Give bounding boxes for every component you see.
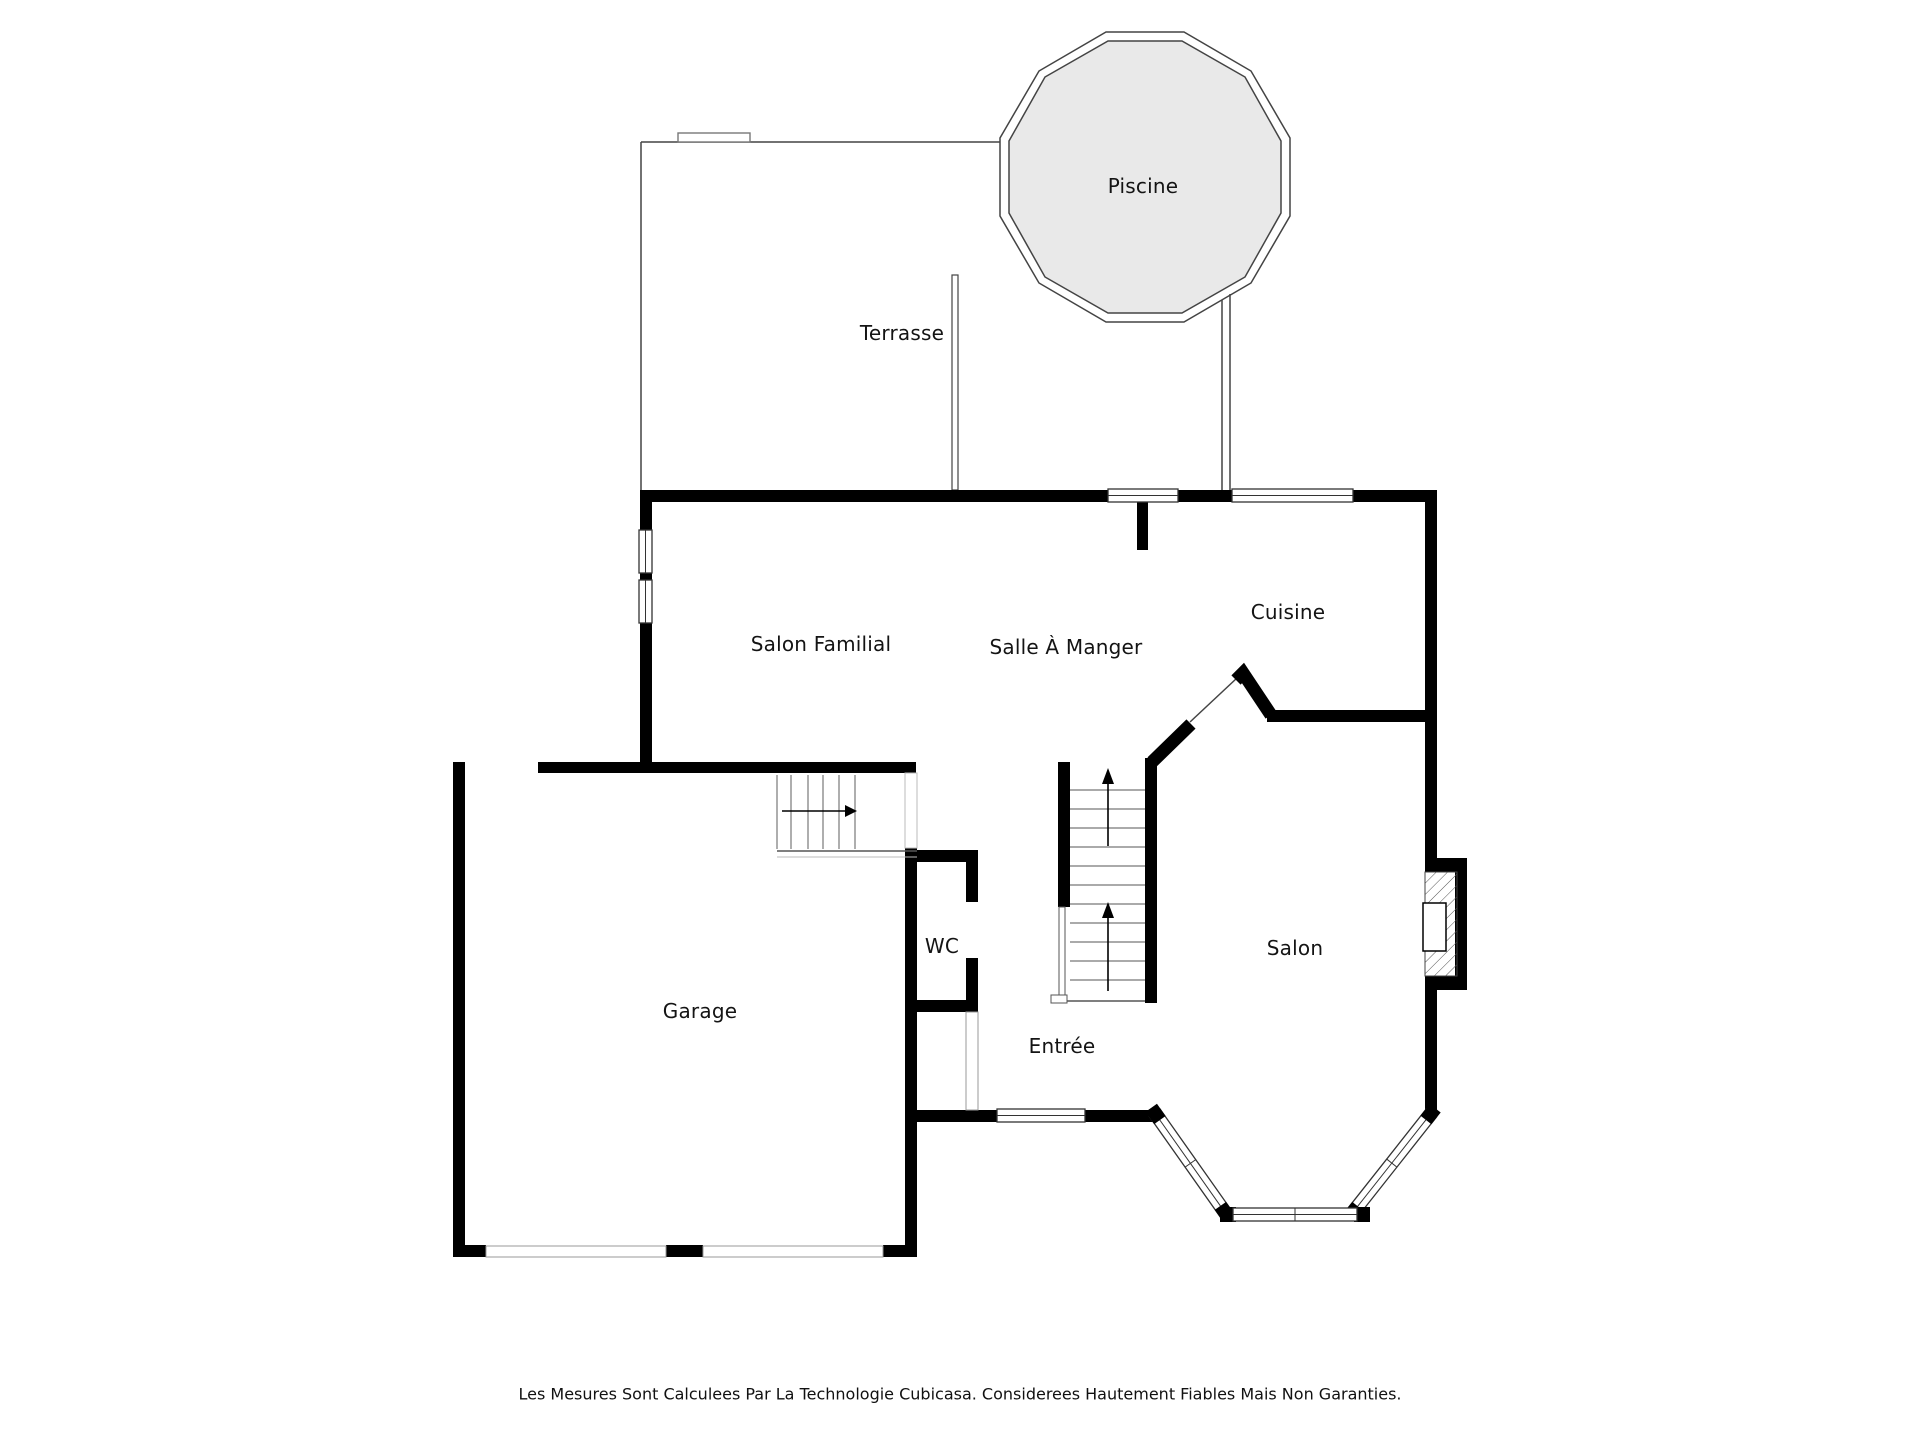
firebox: [1423, 903, 1446, 951]
window-left-2: [639, 580, 652, 623]
door-opening: [1190, 678, 1237, 722]
closet-door: [966, 1012, 978, 1110]
room-label-wc: WC: [925, 934, 959, 958]
stairs-garage: [777, 775, 917, 857]
fireplace: [1423, 858, 1467, 990]
garage-door-2: [703, 1246, 883, 1257]
up-arrow-icon: [1102, 902, 1114, 991]
terrasse-outline: [641, 133, 1000, 490]
window-top-1: [1108, 489, 1178, 502]
opening-edge: [905, 773, 917, 848]
floor-plan: Piscine Terrasse Salon Familial Salle À …: [0, 0, 1920, 1440]
room-label-salon-familial: Salon Familial: [751, 632, 891, 656]
room-label-garage: Garage: [663, 999, 737, 1023]
garage-door-1: [486, 1246, 666, 1257]
interior-walls: [905, 501, 1425, 1110]
bay-window: [1146, 1104, 1441, 1222]
up-arrow-icon: [1102, 768, 1114, 846]
terrasse-step: [678, 133, 750, 142]
floor-plan-graphics: [0, 0, 1920, 1440]
pool: [1000, 32, 1290, 490]
room-label-entree: Entrée: [1029, 1034, 1096, 1058]
window-top-2: [1232, 489, 1353, 502]
window-entry: [997, 1109, 1085, 1122]
disclaimer-text: Les Mesures Sont Calculees Par La Techno…: [518, 1385, 1401, 1404]
room-label-salon: Salon: [1267, 936, 1323, 960]
right-arrow-icon: [782, 805, 857, 817]
stair-rail-foot: [1051, 995, 1067, 1003]
stair-rail: [1059, 907, 1065, 995]
room-label-cuisine: Cuisine: [1251, 600, 1326, 624]
room-label-terrasse: Terrasse: [860, 321, 944, 345]
windows: [486, 489, 1353, 1257]
window-left-1: [639, 530, 652, 573]
room-label-piscine: Piscine: [1108, 174, 1179, 198]
room-label-salle-a-manger: Salle À Manger: [990, 635, 1143, 659]
terrasse-rail: [952, 275, 958, 490]
